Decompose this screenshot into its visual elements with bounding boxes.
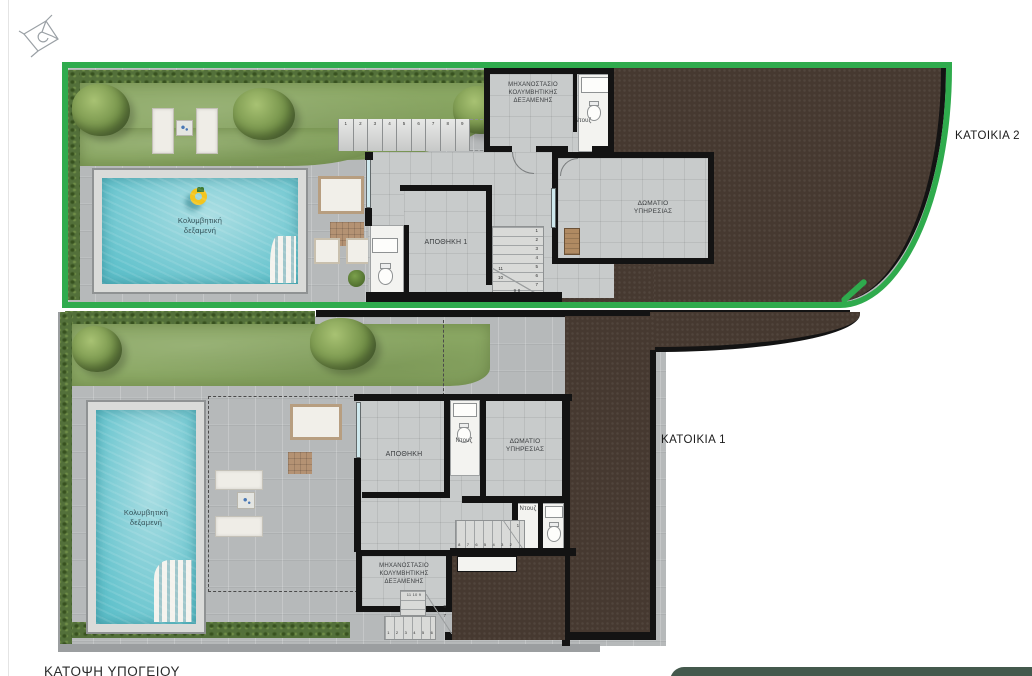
sink-icon (581, 77, 609, 93)
frame-line (8, 0, 9, 676)
lounger-icon (215, 470, 263, 490)
wall (484, 146, 512, 152)
earth-area-1-top (650, 312, 860, 352)
wall (484, 68, 490, 152)
machinery-room-2: ΜΗΧΑΝΟΣΤΑΣΙΟ ΚΟΛΥΜΒΗΤΙΚΗΣ ΔΕΞΑΜΕΝΗΣ (488, 74, 578, 152)
floor-plan-canvas: 123456789 Κολυμβητική δεξαμενή (0, 0, 1032, 676)
side-table-icon (237, 492, 255, 509)
wall (366, 292, 562, 302)
wall (573, 74, 577, 132)
shower-2-label: Ντουζ (566, 118, 600, 126)
shower-2-label: Ντουζ (514, 506, 542, 514)
wall (354, 494, 361, 552)
pool-1-label: Κολυμβητική δεξαμενή (96, 508, 196, 528)
wood-door (564, 228, 580, 255)
wall (650, 350, 656, 638)
wall (608, 68, 614, 154)
exterior-stairs-1-side-numbers: 87 (436, 602, 448, 620)
tree-icon (310, 318, 376, 370)
window-glazing (356, 402, 361, 458)
window-glazing (366, 156, 371, 208)
wall (362, 492, 450, 498)
hedge-top-1 (65, 311, 315, 324)
wall (365, 208, 372, 226)
earth-area-1 (565, 316, 655, 632)
lounger-icon (215, 516, 263, 537)
wall (400, 185, 492, 191)
toilet-icon (547, 526, 561, 542)
machinery-room-1-label: ΜΗΧΑΝΟΣΤΑΣΙΟ ΚΟΛΥΜΒΗΤΙΚΗΣ ΔΕΞΑΜΕΝΗΣ (362, 563, 446, 586)
lounger-icon (152, 108, 174, 154)
coffee-table-icon (288, 452, 312, 474)
pool-1-steps (154, 560, 192, 622)
chair-icon (314, 238, 340, 264)
pool-2-coping: Κολυμβητική δεξαμενή (92, 168, 308, 294)
wall (450, 548, 576, 556)
wall (354, 458, 361, 494)
plan-caption: ΚΑΤΟΨΗ ΥΠΟΓΕΙΟΥ (44, 664, 180, 676)
bathroom-2 (578, 74, 612, 152)
wall (484, 68, 614, 74)
sink-icon (453, 403, 477, 417)
window-glazing (551, 188, 556, 228)
pool-float-icon (190, 188, 207, 205)
exterior-stairs-1-upper-numbers: 11 10 9 (399, 592, 429, 597)
interior-stairs-1-top-number: 1 (514, 523, 522, 529)
sofa-icon (318, 176, 364, 214)
tree-icon (72, 84, 130, 136)
storage-room-2-label: ΑΠΟΘΗΚΗ 1 (404, 238, 488, 247)
garden-lawn-1 (70, 324, 490, 386)
service-room-2-label: ΔΩΜΑΤΙΟ ΥΠΗΡΕΣΙΑΣ (598, 200, 708, 217)
lightwell (457, 556, 517, 572)
wall (365, 152, 373, 160)
residence-2-label: ΚΑΤΟΙΚΙΑ 2 (955, 130, 1020, 142)
shower-1-label: Ντουζ (446, 438, 482, 446)
plot-residence-1: Κολυμβητική δεξαμενή ΑΠΟΘΗΚΗ Ντουζ (58, 310, 868, 656)
garden-lawn-2-left (80, 128, 380, 166)
pool-1-coping: Κολυμβητική δεξαμενή (86, 400, 206, 634)
pool-2-water: Κολυμβητική δεξαμενή (102, 178, 298, 284)
storage-room-2: ΑΠΟΘΗΚΗ 1 (404, 190, 488, 298)
hedge-left-1 (60, 312, 72, 644)
pool-2-label: Κολυμβητική δεξαμενή (102, 216, 298, 236)
side-table-icon (176, 120, 193, 136)
machinery-room-2-label: ΜΗΧΑΝΟΣΤΑΣΙΟ ΚΟΛΥΜΒΗΤΙΚΗΣ ΔΕΞΑΜΕΝΗΣ (488, 82, 578, 105)
lounger-icon (196, 108, 218, 154)
exterior-stairs-1-upper: 11 10 9 (400, 590, 426, 616)
terrace-stairs-2: 123456789 (338, 119, 470, 151)
tree-icon (72, 326, 122, 372)
sofa-icon (290, 404, 342, 440)
pool-2-steps (270, 236, 296, 283)
interior-stairs-2-numbers-left: 1110 (492, 264, 505, 282)
storage-room-1-label: ΑΠΟΘΗΚΗ (362, 450, 446, 459)
wc-room-2 (370, 225, 404, 295)
wall (404, 225, 409, 295)
plant-icon (348, 270, 365, 287)
tree-icon (233, 88, 295, 140)
wall (462, 496, 566, 503)
residence-1-label: ΚΑΤΟΙΚΙΑ 1 (661, 434, 726, 446)
exterior-stairs-1-lower-numbers: 123456 (384, 630, 436, 639)
hedge-top-2 (70, 70, 495, 83)
north-indicator-icon (16, 12, 68, 62)
plot-residence-2: 123456789 Κολυμβητική δεξαμενή (62, 62, 952, 308)
interior-stairs-2-numbers: 1234567 (524, 226, 540, 289)
pool-1-water: Κολυμβητική δεξαμενή (96, 410, 196, 624)
toilet-icon (378, 268, 393, 285)
veranda-dashed-line (443, 320, 445, 396)
sink-icon (372, 238, 398, 253)
bottom-banner (670, 667, 1032, 676)
door-arc (560, 158, 578, 176)
service-room-1-label: ΔΩΜΑΤΙΟ ΥΠΗΡΕΣΙΑΣ (486, 438, 564, 455)
sink-icon (545, 506, 563, 518)
retaining-wall (58, 644, 600, 652)
